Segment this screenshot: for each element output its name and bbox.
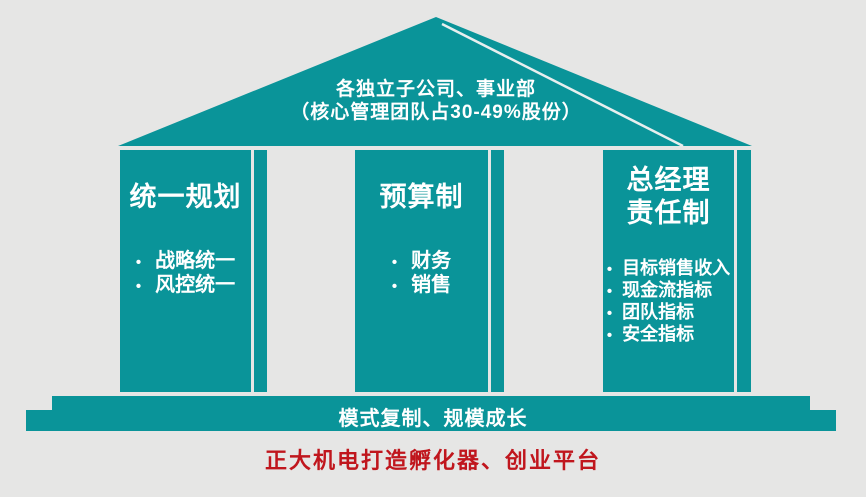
bullet-text: 现金流指标 [622,280,712,301]
bullet-text: 销售 [411,274,451,296]
bullet-item: • 目标销售收入 [607,258,730,280]
bullet-item: • 团队指标 [607,302,730,324]
bullet-text: 风控统一 [155,274,235,296]
pillar-unified-planning-side-strip [254,150,267,392]
bullet-item: • 财务 [392,250,451,274]
pillar-title-line: 预算制 [355,181,488,214]
bullet-dot-icon: • [607,303,612,324]
bullet-text: 目标销售收入 [622,258,730,279]
bullet-item: • 销售 [392,274,451,298]
pillar-gm-responsibility-title: 总经理 责任制 [603,150,734,230]
bullet-item: • 现金流指标 [607,280,730,302]
pillar-unified-planning-title: 统一规划 [120,150,251,214]
pillar-title-line: 总经理 [603,164,734,197]
bullet-dot-icon: • [607,325,612,346]
slide-caption: 正大机电打造孵化器、创业平台 [0,443,866,475]
pillar-title-line: 责任制 [603,197,734,230]
roof-label: 各独立子公司、事业部 （核心管理团队占30-49%股份） [196,78,676,124]
pillar-title-line: 统一规划 [120,181,251,214]
pillar-budget-system-title: 预算制 [355,150,488,214]
bullet-item: • 安全指标 [607,324,730,346]
bullet-dot-icon: • [136,276,141,298]
roof-triangle [0,0,866,150]
pillar-unified-planning-bullets: • 战略统一 • 风控统一 [120,250,251,298]
bullet-text: 战略统一 [155,250,235,272]
roof-label-line2: （核心管理团队占30-49%股份） [196,101,676,124]
slide-canvas: 各独立子公司、事业部 （核心管理团队占30-49%股份） 统一规划 • 战略统一… [0,0,866,497]
bullet-item: • 战略统一 [136,250,235,274]
bullet-dot-icon: • [392,252,397,274]
pillar-budget-system: 预算制 • 财务 • 销售 [355,150,488,392]
bullet-item: • 风控统一 [136,274,235,298]
bullet-text: 团队指标 [622,302,694,323]
bullet-dot-icon: • [607,281,612,302]
pillar-gm-responsibility-side-strip [737,150,751,392]
bullet-dot-icon: • [392,276,397,298]
pillar-budget-system-bullets: • 财务 • 销售 [355,250,488,298]
bullet-dot-icon: • [136,252,141,274]
pillar-gm-responsibility-bullets: • 目标销售收入 • 现金流指标 • 团队指标 • 安全指标 [603,258,734,346]
bullet-dot-icon: • [607,259,612,280]
pillar-gm-responsibility: 总经理 责任制 • 目标销售收入 • 现金流指标 • 团队指标 • [603,150,734,392]
pillar-unified-planning: 统一规划 • 战略统一 • 风控统一 [120,150,251,392]
pillar-budget-system-side-strip [491,150,504,392]
bullet-text: 财务 [411,250,451,272]
bullet-text: 安全指标 [622,324,694,345]
roof-label-line1: 各独立子公司、事业部 [196,78,676,101]
base-label: 模式复制、规模成长 [0,402,866,431]
